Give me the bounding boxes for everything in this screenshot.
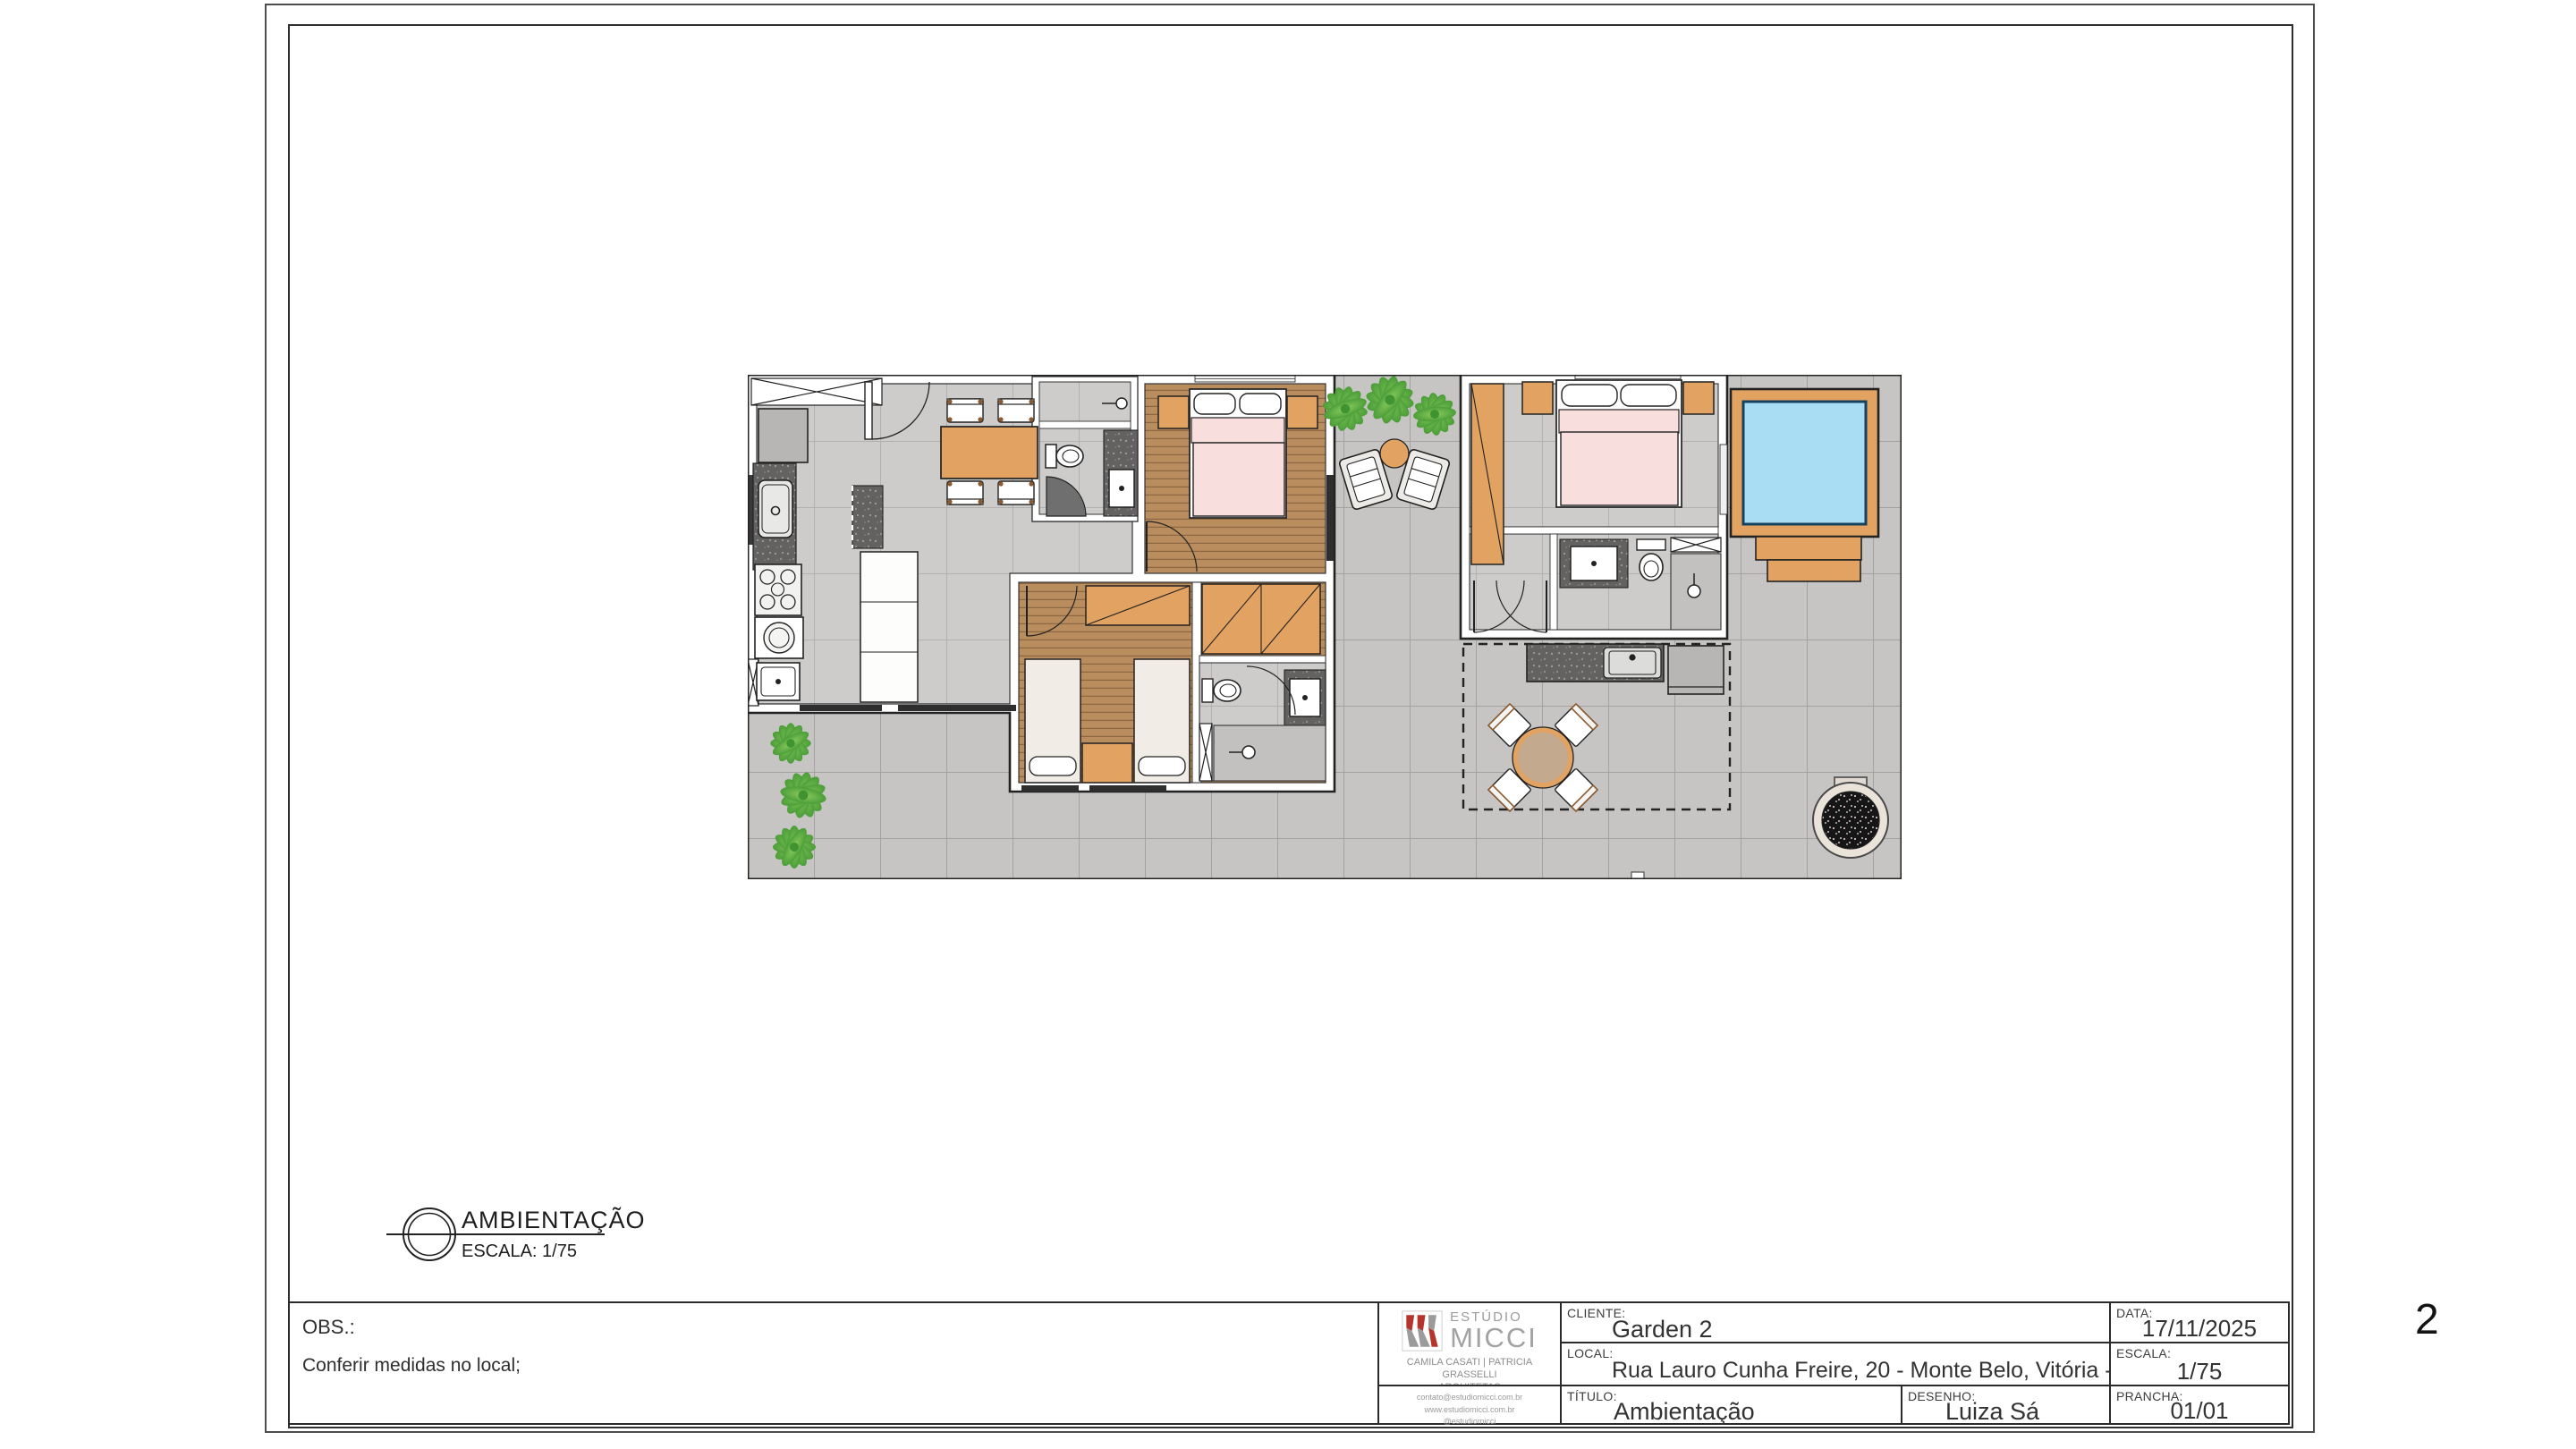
data-value: 17/11/2025: [2111, 1315, 2288, 1343]
cliente-cell: CLIENTE: Garden 2: [1560, 1301, 2111, 1343]
nightstand: [1522, 382, 1553, 414]
pool-water: [1743, 402, 1866, 524]
local-label: LOCAL:: [1567, 1346, 1614, 1360]
page-number: 2: [2415, 1295, 2439, 1344]
desenho-value: Luiza Sá: [1945, 1398, 2109, 1426]
drawing-title: AMBIENTAÇÃO: [462, 1206, 644, 1233]
logo-byline1: CAMILA CASATI | PATRICIA GRASSELLI: [1407, 1357, 1532, 1380]
studio-micci-logo-icon: [1402, 1310, 1443, 1352]
local-cell: LOCAL: Rua Lauro Cunha Freire, 20 - Mont…: [1560, 1342, 2111, 1386]
side-table: [1380, 439, 1409, 468]
logo-cell: ESTÚDIO MICCI CAMILA CASATI | PATRICIA G…: [1377, 1301, 1562, 1386]
prancha-cell: PRANCHA: 01/01: [2109, 1385, 2290, 1425]
floor-plan: [748, 375, 1902, 879]
prancha-value: 01/01: [2111, 1397, 2288, 1425]
shower-valve: [1116, 398, 1127, 409]
drawing-label: AMBIENTAÇÃO ESCALA: 1/75: [376, 1194, 644, 1275]
master-glass-door: [1326, 475, 1334, 561]
obs-label: OBS.:: [302, 1316, 355, 1339]
nightstand: [1683, 382, 1714, 414]
drawing-scale: ESCALA: 1/75: [462, 1241, 577, 1261]
contact-email: contato@estudiomicci.com.br: [1417, 1393, 1522, 1402]
logo-line2: MICCI: [1450, 1324, 1538, 1352]
shower-head: [1242, 746, 1255, 758]
nightstand: [1158, 396, 1189, 428]
living-slider-1: [800, 705, 882, 711]
twin-nightstand: [1082, 743, 1132, 783]
twin-window-1: [1021, 785, 1079, 792]
obs-note: Conferir medidas no local;: [302, 1355, 521, 1377]
gourmet-sink: [1604, 648, 1661, 678]
pool-step-2: [1767, 560, 1860, 581]
escala-cell: ESCALA: 1/75: [2109, 1342, 2290, 1386]
contact-social: @estudiomicci: [1444, 1417, 1496, 1426]
titulo-cell: TÍTULO: Ambientação: [1560, 1385, 1902, 1425]
data-cell: DATA: 17/11/2025: [2109, 1301, 2290, 1343]
titulo-value: Ambientação: [1614, 1398, 1901, 1426]
contact-cell: contato@estudiomicci.com.br www.estudiom…: [1377, 1385, 1562, 1425]
pool-step-1: [1756, 537, 1861, 560]
suite-glass-door: [1720, 445, 1727, 514]
titulo-label: TÍTULO:: [1567, 1389, 1617, 1403]
living-slider-2: [898, 705, 1016, 711]
cliente-value: Garden 2: [1612, 1316, 2109, 1343]
island-cabinet: [860, 552, 918, 702]
shower-area: [1214, 725, 1326, 781]
nightstand: [1287, 396, 1318, 428]
dining-table: [941, 427, 1038, 479]
desenho-cell: DESENHO: Luiza Sá: [1901, 1385, 2111, 1425]
obs-cell: OBS.: Conferir medidas no local;: [288, 1301, 1379, 1425]
round-table: [1515, 730, 1571, 785]
kitchen-sink: [758, 480, 792, 538]
twin-window-2: [1089, 785, 1166, 792]
fridge: [758, 409, 808, 462]
island-counter: [852, 486, 883, 548]
contact-site: www.estudiomicci.com.br: [1424, 1405, 1514, 1414]
local-value: Rua Lauro Cunha Freire, 20 - Monte Belo,…: [1612, 1358, 2109, 1384]
escala-value: 1/75: [2111, 1358, 2288, 1385]
